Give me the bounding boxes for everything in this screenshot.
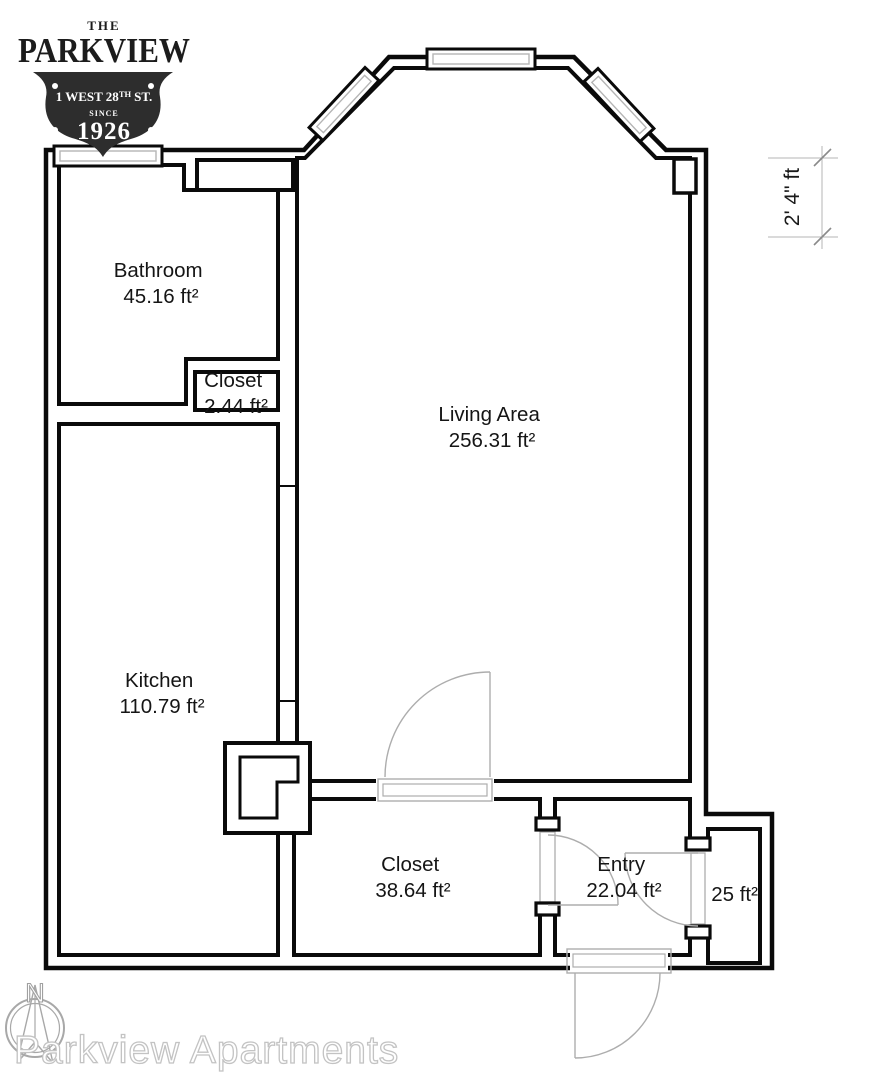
logo-since: SINCE	[89, 109, 118, 118]
logo-address: 1 WEST 28THST.	[56, 89, 153, 104]
shaft-top-left	[197, 160, 293, 190]
logo-name: PARKVIEW	[18, 31, 190, 70]
room-entry	[555, 799, 690, 955]
floor-plan-page: Bathroom 45.16 ft² Closet 2.44 ft² Livin…	[0, 0, 879, 1080]
room-closet-large	[294, 799, 540, 955]
door-main-entrance	[567, 947, 671, 1058]
compass-north-label: N	[25, 978, 45, 1008]
logo-year: 1926	[77, 118, 131, 145]
floor-plan-drawing: Bathroom 45.16 ft² Closet 2.44 ft² Livin…	[0, 0, 879, 1080]
dimension-annotation: 2' 4" ft	[768, 146, 838, 249]
window-bay-top	[427, 49, 535, 69]
logo-rivet	[148, 127, 154, 133]
watermark-text: Parkview Apartments	[14, 1029, 399, 1072]
shaft-top-right	[674, 159, 696, 193]
parkview-logo: THE PARKVIEW 1 WEST 28THST. SINCE 1926	[18, 18, 190, 157]
logo-rivet	[52, 127, 58, 133]
dimension-label: 2' 4" ft	[781, 168, 804, 226]
